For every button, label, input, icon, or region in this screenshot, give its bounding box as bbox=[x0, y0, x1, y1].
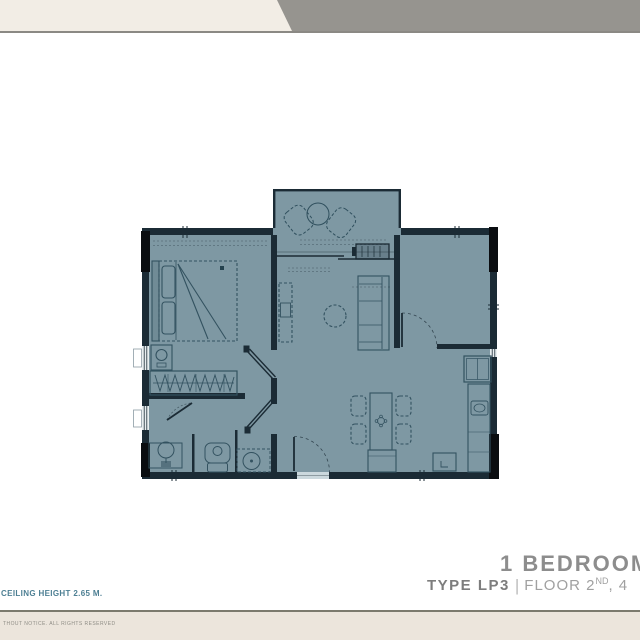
footer-band: THOUT NOTICE. ALL RIGHTS RESERVED bbox=[0, 612, 640, 640]
floor-rest: , 4 bbox=[608, 577, 628, 594]
bed-headboard bbox=[152, 261, 159, 341]
ceiling-height-note: CEILING HEIGHT 2.65 M. bbox=[1, 589, 103, 598]
unit-floor bbox=[142, 228, 497, 479]
floor-plan bbox=[0, 0, 640, 640]
floor-superscript: ND bbox=[595, 576, 608, 586]
separator: | bbox=[510, 576, 524, 595]
ac-unit bbox=[352, 244, 389, 259]
plan-title: 1 BEDROOM bbox=[500, 551, 640, 577]
entrance-opening bbox=[295, 472, 331, 479]
type-label: TYPE LP3 bbox=[427, 577, 510, 594]
rights-text: THOUT NOTICE. ALL RIGHTS RESERVED bbox=[3, 621, 116, 627]
floor-text: FLOOR 2 bbox=[524, 577, 595, 594]
floor-label: FLOOR 2ND, 4 bbox=[524, 577, 628, 594]
plan-subtitle: TYPE LP3|FLOOR 2ND, 4 bbox=[427, 576, 628, 596]
